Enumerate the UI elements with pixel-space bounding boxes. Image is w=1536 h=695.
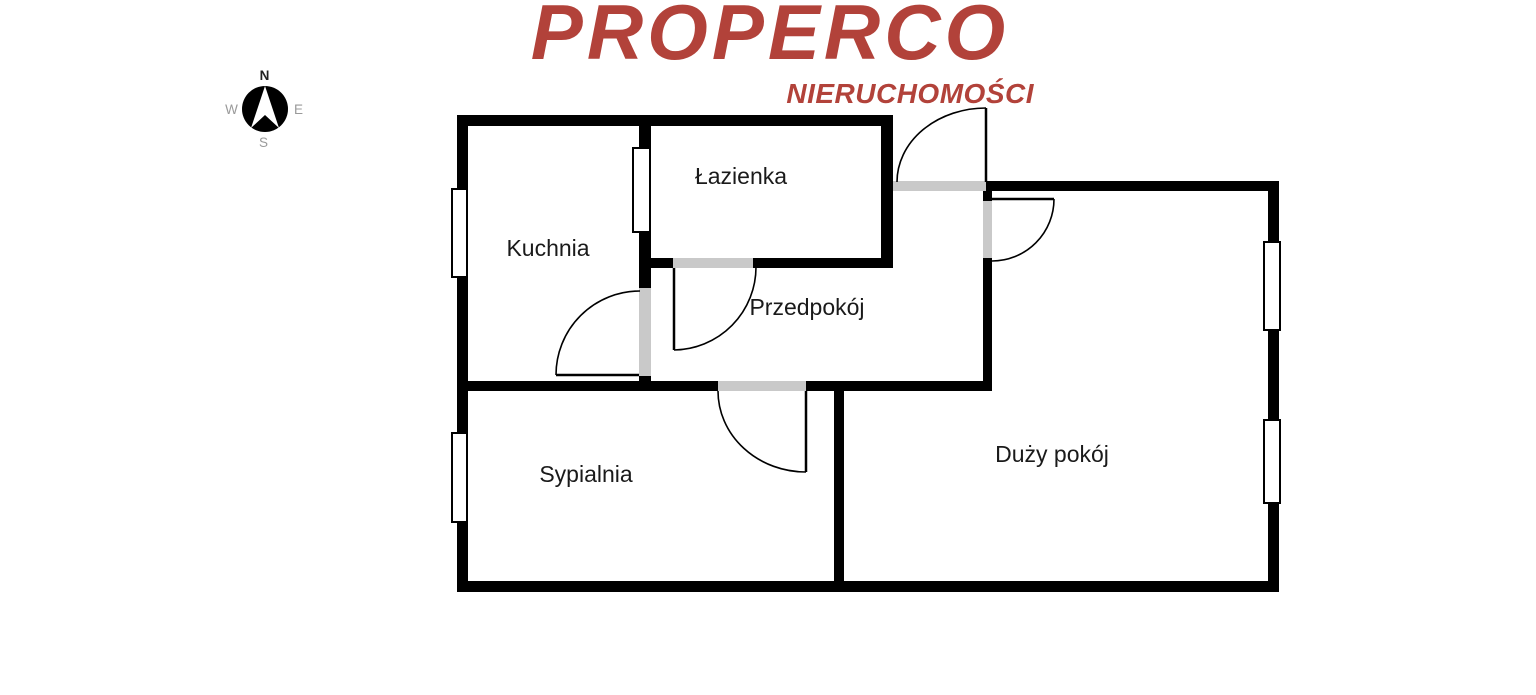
door-bedroom-swing-arc — [718, 391, 806, 472]
wall-exterior-bottom — [457, 581, 1279, 592]
compass-east-label: E — [294, 102, 304, 117]
compass-west-label: W — [225, 102, 239, 117]
room-label-bedroom: Sypialnia — [539, 461, 633, 487]
door-bathroom-opening — [673, 258, 753, 268]
window-bedroom-left — [452, 433, 467, 522]
door-bedroom-opening — [718, 381, 806, 391]
door-bathroom-swing-arc — [674, 267, 756, 350]
door-living-room-opening — [983, 201, 992, 258]
room-label-bathroom: Łazienka — [695, 163, 787, 189]
room-label-kitchen: Kuchnia — [506, 235, 589, 261]
wall-top-living-room — [987, 181, 1279, 191]
door-entrance-swing-arc — [897, 108, 986, 182]
room-label-living-room: Duży pokój — [995, 441, 1109, 467]
door-bedroom — [718, 381, 806, 472]
door-kitchen — [556, 288, 651, 376]
door-kitchen-swing-arc — [556, 291, 640, 375]
window-living-room-upper — [1264, 242, 1280, 330]
wall-bathroom-right — [881, 115, 893, 268]
door-kitchen-opening — [639, 288, 651, 376]
doors — [556, 108, 1054, 472]
wall-exterior-top — [457, 115, 893, 126]
floor-plan-drawing: N W E S — [0, 0, 1536, 695]
window-living-room-lower — [1264, 420, 1280, 503]
room-label-hallway: Przedpokój — [749, 294, 864, 320]
door-living-room-swing-arc — [992, 199, 1054, 261]
wall-bedroom-living-divider — [834, 381, 844, 592]
door-entrance — [893, 108, 986, 191]
window-kitchen-divider — [633, 148, 650, 232]
door-bathroom — [673, 258, 756, 350]
room-labels: Kuchnia Łazienka Przedpokój Sypialnia Du… — [506, 163, 1108, 487]
floor-plan-page: PROPERCO NIERUCHOMOŚCI N W E S — [0, 0, 1536, 695]
door-entrance-opening — [893, 181, 986, 191]
compass-south-label: S — [259, 135, 269, 150]
window-kitchen-left — [452, 189, 467, 277]
compass-north-label: N — [260, 68, 271, 83]
walls — [457, 115, 1279, 592]
door-living-room — [983, 199, 1054, 261]
compass-rose: N W E S — [225, 68, 304, 150]
